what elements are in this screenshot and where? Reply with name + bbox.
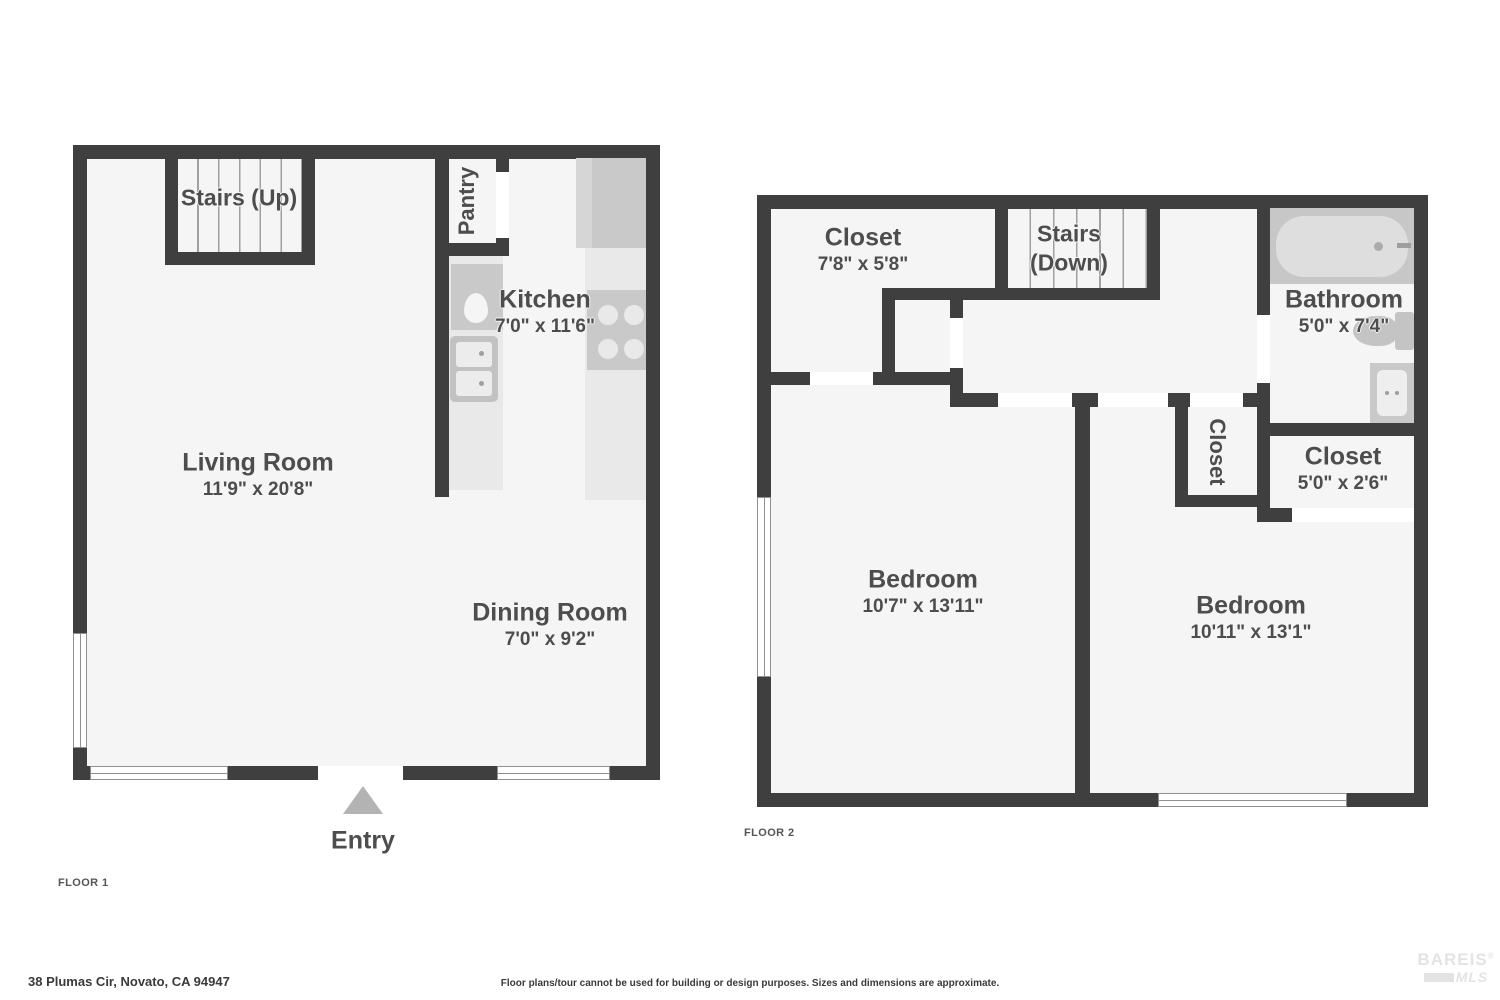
wall-bedroom-separator xyxy=(1075,393,1090,793)
linen-door-opening xyxy=(950,318,963,368)
entry-arrow-icon xyxy=(343,786,383,814)
property-address: 38 Plumas Cir, Novato, CA 94947 xyxy=(28,974,230,989)
stove-burner xyxy=(624,339,644,359)
wall xyxy=(757,195,1428,209)
bedroom1-dims: 10'7" x 13'11" xyxy=(862,596,983,618)
bedroom1-label: Bedroom xyxy=(868,566,978,595)
closet-right-label: Closet xyxy=(1305,443,1381,472)
logo-bar xyxy=(1424,973,1454,982)
logo-bareis-text: BAREIS xyxy=(1417,950,1487,969)
bareis-mls-logo: BAREIS® MLS xyxy=(1414,951,1498,984)
wall-bath-left-top xyxy=(1257,195,1270,315)
disclaimer-text: Floor plans/tour cannot be used for buil… xyxy=(501,978,999,989)
sink-basin xyxy=(456,342,492,367)
wall-midcloset-left xyxy=(1175,407,1188,507)
kitchen-dims: 7'0" x 11'6" xyxy=(495,316,595,338)
wall-pantry-right-top xyxy=(496,159,509,172)
wall-bath-bottom xyxy=(1257,423,1428,436)
tub-drain xyxy=(1374,242,1383,251)
closet-top-label: Closet xyxy=(825,224,901,253)
window xyxy=(1158,793,1347,807)
wall-closet-bottom-seg2 xyxy=(873,372,963,385)
wall-hall-bottom-seg1 xyxy=(950,393,998,407)
stove-burner xyxy=(598,305,618,325)
living-room-dims: 11'9" x 20'8" xyxy=(203,479,314,501)
living-room-label: Living Room xyxy=(182,449,333,478)
floor-plan-canvas: Stairs (Up) Pantry Kitchen 7'0" x 11'6 xyxy=(0,0,1500,1000)
bathroom-door-opening xyxy=(1257,315,1270,383)
wall-rightcloset-bottom xyxy=(1257,508,1292,522)
wall-upper-horizontal xyxy=(882,288,1160,300)
sink-drain xyxy=(1395,391,1399,395)
floor2-plan: Stairs (Down) Closet 7'8" x 5'8" xyxy=(757,195,1428,807)
wall xyxy=(646,145,660,780)
wall-kitchen xyxy=(435,145,449,497)
pantry-door-opening xyxy=(496,172,509,238)
pantry-label: Pantry xyxy=(454,167,480,235)
wall-stairs-left xyxy=(995,209,1008,300)
wall-hall-bottom-seg3 xyxy=(1168,393,1190,407)
floor2-tag: FLOOR 2 xyxy=(744,827,794,839)
stove-burner xyxy=(598,339,618,359)
midcloset-door-opening xyxy=(1190,393,1243,407)
bathroom-label: Bathroom xyxy=(1285,286,1403,315)
wall-closet-bottom-seg1 xyxy=(757,372,810,385)
bathroom-sink-basin xyxy=(1377,370,1407,416)
kitchen-label: Kitchen xyxy=(499,286,591,315)
wall-pantry-bottom xyxy=(449,243,509,256)
dining-room-label: Dining Room xyxy=(472,599,628,628)
registered-mark: ® xyxy=(1488,951,1495,960)
entry-door-opening xyxy=(318,766,403,780)
floor1-plan: Stairs (Up) Pantry Kitchen 7'0" x 11'6 xyxy=(73,145,660,780)
wall xyxy=(73,145,660,159)
dining-room-dims: 7'0" x 9'2" xyxy=(505,629,595,651)
entry-label: Entry xyxy=(331,827,395,856)
wall-stairs-left xyxy=(165,159,178,265)
wall-hall-left-top xyxy=(950,300,963,318)
bedroom2-door-opening xyxy=(1098,393,1168,407)
faucet-shape xyxy=(464,293,488,323)
wall-stairs-right xyxy=(302,159,315,265)
sink-drain xyxy=(479,381,484,386)
closet-mid-label: Closet xyxy=(1204,418,1230,485)
closet-top-dims: 7'8" x 5'8" xyxy=(818,254,908,276)
stove-burner xyxy=(624,305,644,325)
window xyxy=(73,633,87,748)
stairs-up-label: Stairs (Up) xyxy=(181,185,297,212)
logo-mls-row: MLS xyxy=(1414,970,1498,984)
bedroom2-dims: 10'11" x 13'1" xyxy=(1190,622,1311,644)
closet-right-dims: 5'0" x 2'6" xyxy=(1298,473,1388,495)
window xyxy=(757,497,771,677)
wall-stairs-right xyxy=(1147,209,1160,300)
logo-mls-text: MLS xyxy=(1456,970,1489,984)
rightcloset-opening xyxy=(1292,508,1414,522)
window xyxy=(90,766,228,780)
sink-basin xyxy=(456,371,492,396)
closet-door-opening xyxy=(810,372,873,385)
bedroom1-door-opening xyxy=(998,393,1072,407)
refrigerator-door xyxy=(576,158,592,248)
tub-faucet xyxy=(1397,243,1411,248)
stairs-down-label-line2: (Down) xyxy=(1030,250,1108,277)
wall-stairs-bottom xyxy=(165,252,315,265)
sink-drain xyxy=(1385,391,1389,395)
logo-wordmark: BAREIS® xyxy=(1414,951,1498,968)
bathroom-dims: 5'0" x 7'4" xyxy=(1299,316,1389,338)
wall xyxy=(1414,195,1428,807)
window xyxy=(497,766,610,780)
wall-midcloset-bottom xyxy=(1175,495,1270,507)
floor1-tag: FLOOR 1 xyxy=(58,877,108,889)
bathtub xyxy=(1276,216,1408,277)
stairs-down-label-line1: Stairs xyxy=(1037,221,1101,248)
sink-drain xyxy=(479,351,484,356)
bedroom2-label: Bedroom xyxy=(1196,592,1306,621)
